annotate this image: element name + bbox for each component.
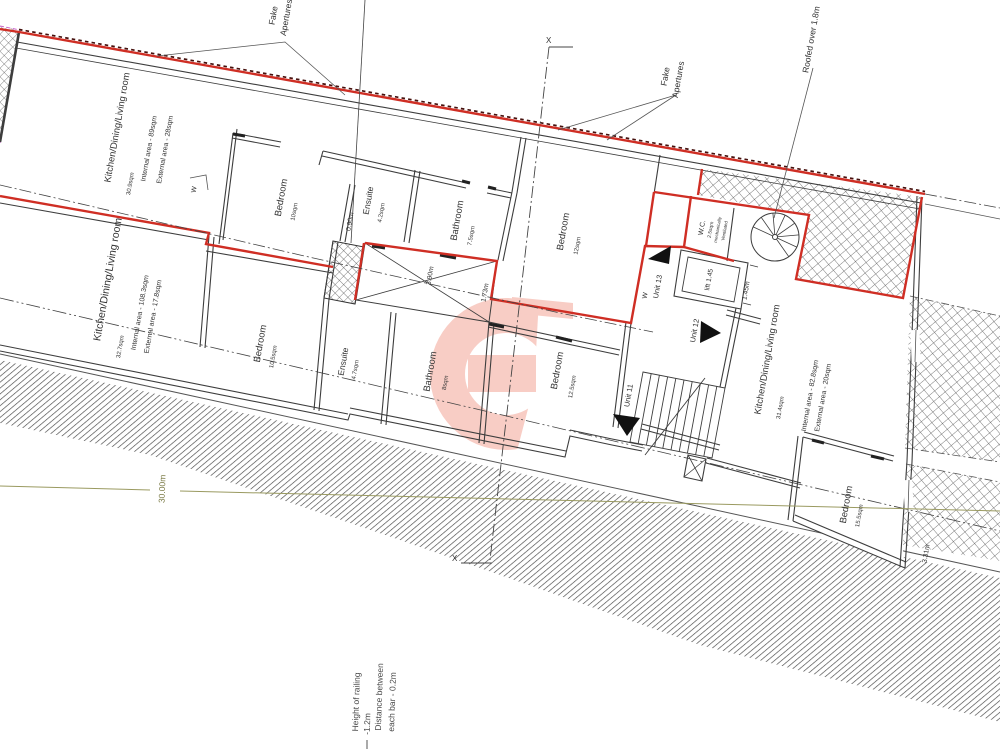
svg-text:30.00m: 30.00m bbox=[157, 475, 168, 504]
svg-text:X: X bbox=[452, 554, 458, 563]
svg-text:-1.2m: -1.2m bbox=[362, 713, 373, 735]
svg-text:each bar - 0.2m: each bar - 0.2m bbox=[386, 672, 398, 732]
svg-text:X: X bbox=[546, 36, 552, 45]
svg-text:Height of railing: Height of railing bbox=[350, 672, 362, 732]
